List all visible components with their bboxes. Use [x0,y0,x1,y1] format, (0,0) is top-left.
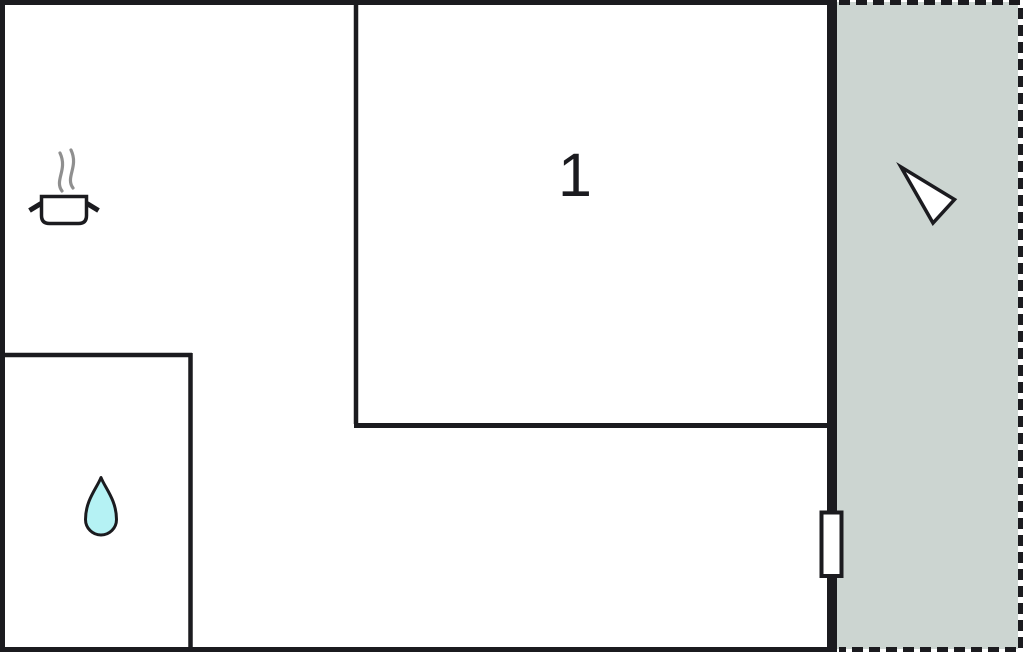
door [822,513,842,577]
floor-plan: 1 [0,0,1023,652]
room-label: 1 [558,141,592,209]
terrace-area [836,2,1021,650]
terrace-fill [836,2,1018,649]
floor-plan-svg: 1 [0,0,1023,652]
pot-body [42,197,87,224]
building [0,0,842,652]
building-outline [3,3,835,650]
